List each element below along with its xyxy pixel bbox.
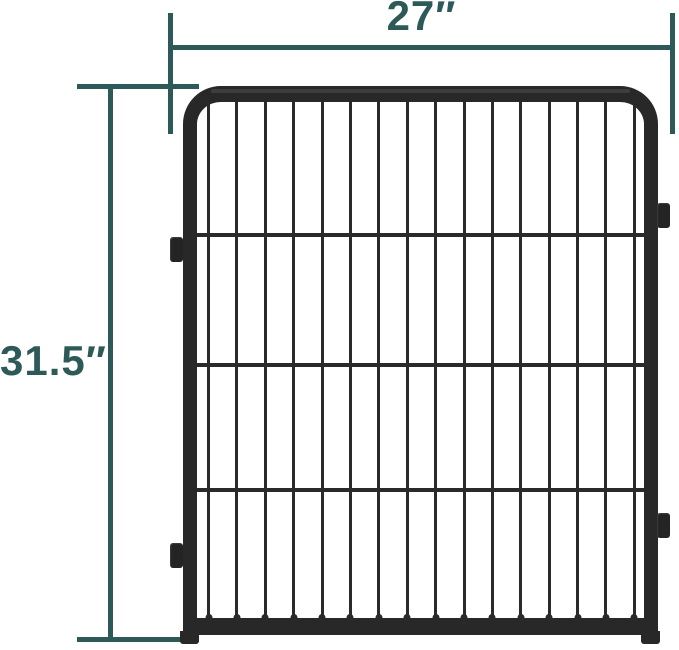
connector-tab-left-bottom [170, 543, 183, 568]
fence-horizontal-rail [197, 488, 644, 492]
fence-right-foot [641, 631, 660, 644]
fence-horizontal-rail [197, 233, 644, 237]
connector-tab-right-bottom [657, 513, 670, 538]
fence-grid [197, 102, 644, 618]
width-dimension-label: 27″ [168, 0, 675, 39]
connector-tab-left-top [170, 237, 183, 262]
height-dimension-tick-top [77, 84, 199, 89]
width-dimension-tick-left [168, 13, 173, 134]
fence-panel-frame [183, 86, 658, 635]
height-dimension-label: 31.5″ [0, 338, 101, 384]
width-dimension-tick-right [670, 13, 675, 134]
width-dimension-line [168, 45, 675, 50]
product-dimension-diagram: 27″ 31.5″ [0, 0, 679, 650]
top-rail-highlight [211, 89, 630, 93]
fence-left-foot [180, 631, 199, 644]
connector-tab-right-top [657, 203, 670, 228]
height-dimension-line [108, 84, 113, 642]
fence-horizontal-rail [197, 363, 644, 367]
horizontal-rails [197, 102, 644, 618]
